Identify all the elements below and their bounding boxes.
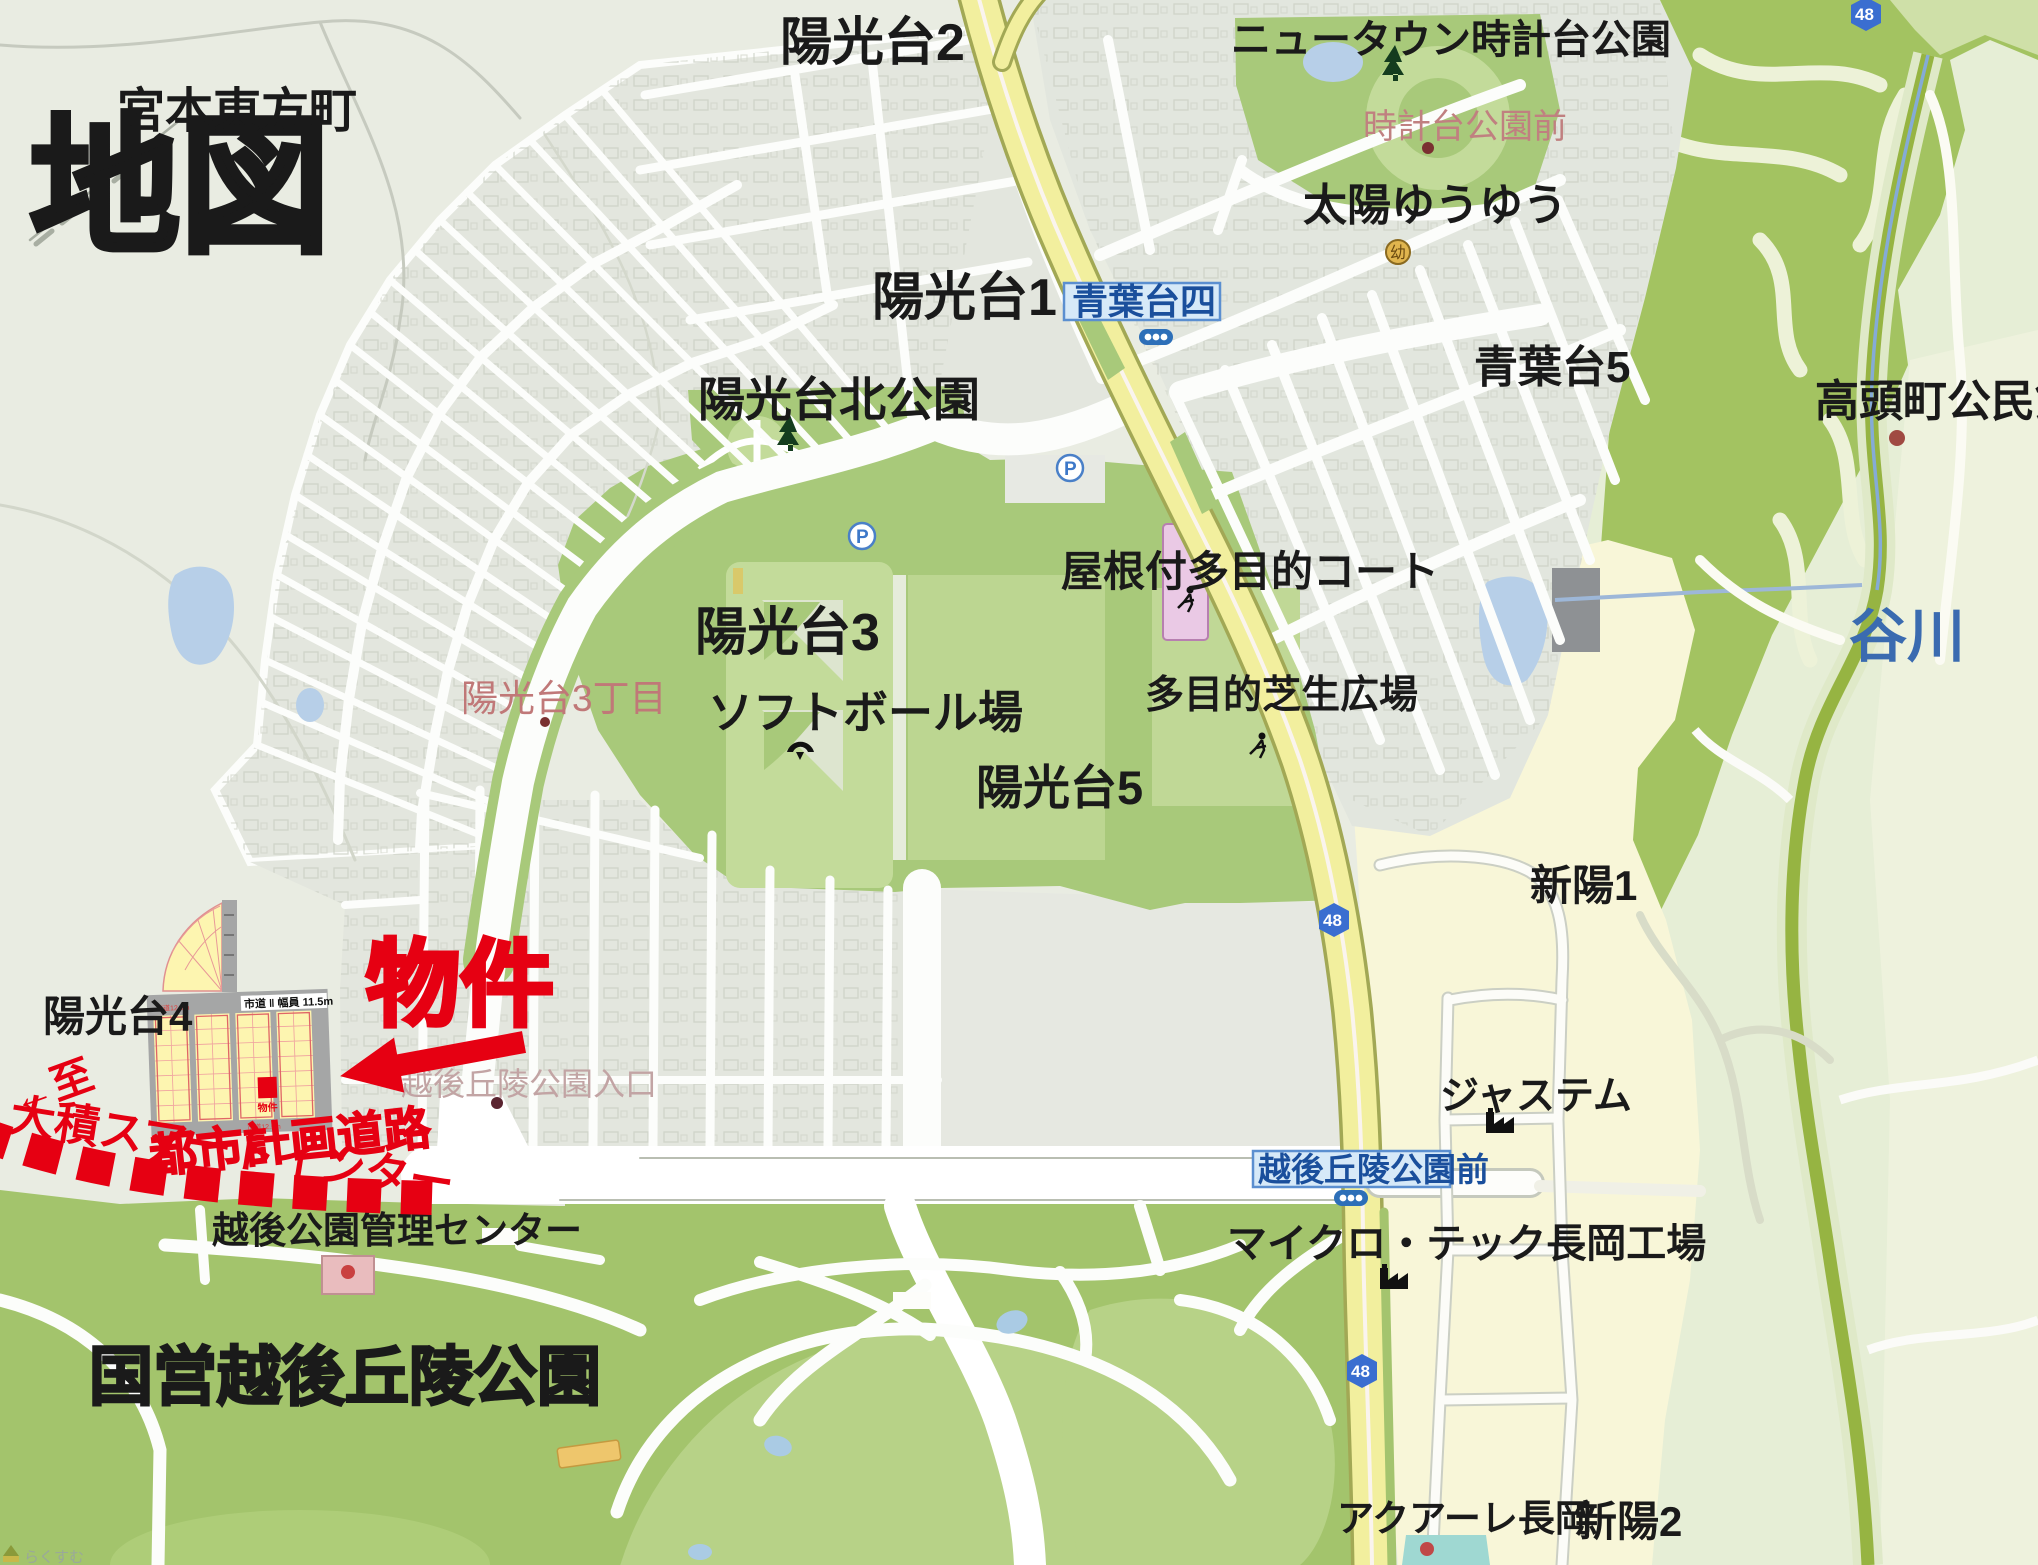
svg-text:幼: 幼 [1390, 244, 1406, 262]
svg-text:陽光台3丁目: 陽光台3丁目 [461, 678, 667, 719]
svg-text:屋根付多目的コート: 屋根付多目的コート [1061, 548, 1439, 595]
svg-text:青葉台四: 青葉台四 [1072, 281, 1216, 322]
svg-text:陽光台北公園: 陽光台北公園 [698, 373, 980, 426]
svg-text:時計台公園前: 時計台公園前 [1363, 108, 1567, 146]
svg-text:48: 48 [1855, 5, 1874, 24]
svg-text:48: 48 [1351, 1362, 1370, 1381]
svg-text:48: 48 [1323, 911, 1342, 930]
svg-text:谷川: 谷川 [1849, 604, 1965, 669]
svg-text:ニュータウン時計台公園: ニュータウン時計台公園 [1231, 18, 1671, 62]
svg-text:新陽1: 新陽1 [1530, 862, 1637, 909]
svg-text:高頭町公民館: 高頭町公民館 [1815, 377, 2038, 426]
svg-text:マイクロ・テック長岡工場: マイクロ・テック長岡工場 [1227, 1222, 1706, 1266]
svg-text:物件: 物件 [366, 932, 554, 1037]
svg-text:国営越後丘陵公園: 国営越後丘陵公園 [89, 1341, 601, 1413]
svg-text:越後公園管理センター: 越後公園管理センター [212, 1210, 582, 1251]
svg-text:青葉台5: 青葉台5 [1474, 343, 1630, 392]
svg-text:陽光台3: 陽光台3 [695, 604, 880, 662]
svg-text:P: P [1064, 459, 1077, 480]
svg-text:アクアーレ長岡: アクアーレ長岡 [1337, 1498, 1592, 1539]
svg-text:陽光台5: 陽光台5 [976, 761, 1143, 814]
svg-text:陽光台1: 陽光台1 [872, 269, 1057, 327]
svg-text:P: P [856, 527, 869, 548]
svg-text:越後丘陵公園前: 越後丘陵公園前 [1258, 1151, 1489, 1188]
svg-text:越後丘陵公園入口: 越後丘陵公園入口 [401, 1066, 657, 1102]
svg-text:太陽ゆうゆう: 太陽ゆうゆう [1303, 181, 1567, 230]
svg-text:宮本東方町: 宮本東方町 [117, 85, 357, 138]
svg-text:ソフトボール場: ソフトボール場 [708, 687, 1023, 738]
svg-text:物件: 物件 [257, 1101, 277, 1115]
svg-text:多目的芝生広場: 多目的芝生広場 [1145, 674, 1418, 717]
svg-text:ジャステム: ジャステム [1440, 1075, 1632, 1118]
svg-text:らくすむ: らくすむ [24, 1549, 84, 1565]
svg-text:陽光台4: 陽光台4 [43, 993, 193, 1040]
svg-text:陽光台2: 陽光台2 [780, 14, 965, 72]
